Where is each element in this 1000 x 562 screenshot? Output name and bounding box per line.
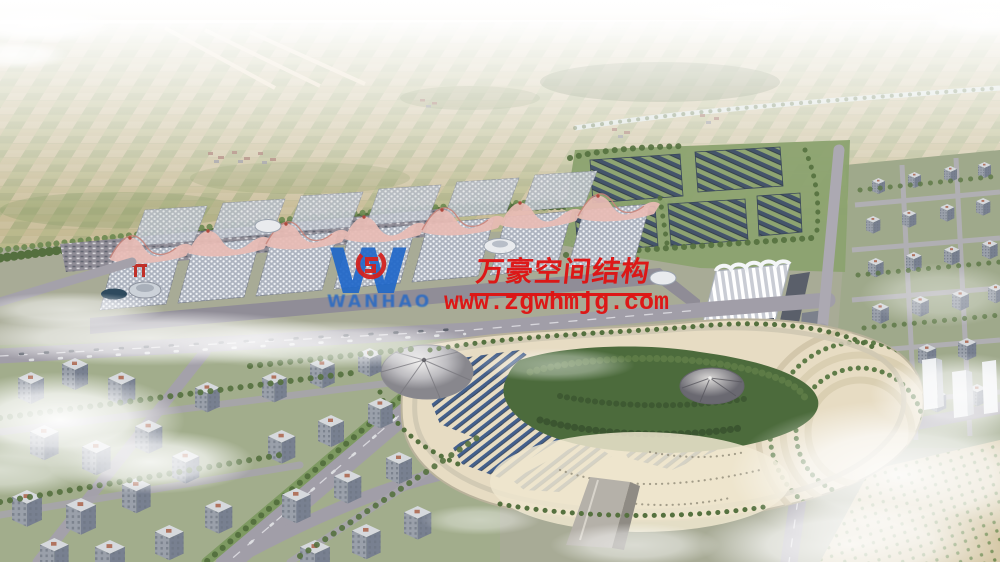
cone-pavilion-east	[680, 368, 744, 404]
aerial-rendering: W WANHAO 万豪空间结构 www.zgwhmjg.com	[0, 0, 1000, 562]
rendering-canvas	[0, 0, 1000, 562]
